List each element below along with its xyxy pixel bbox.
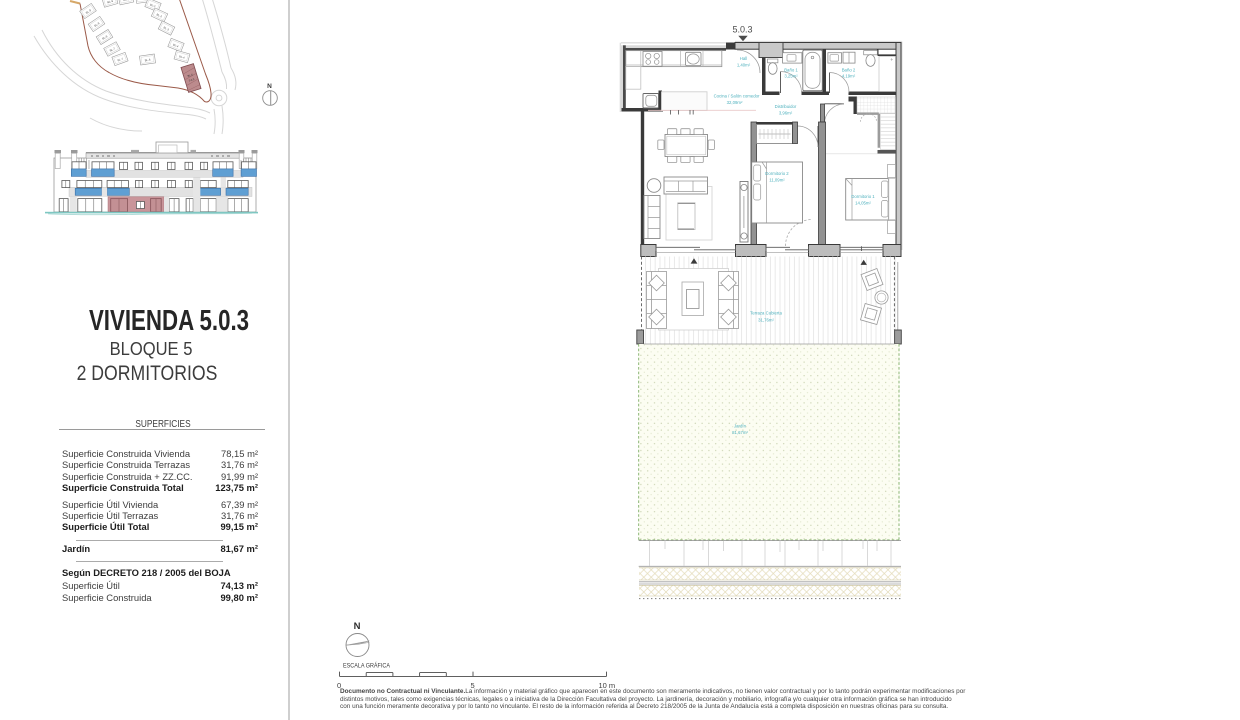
svg-text:Terraza Cubierta: Terraza Cubierta [750, 311, 782, 316]
svg-text:32,09m²: 32,09m² [727, 100, 743, 105]
svg-text:3,25m²: 3,25m² [784, 74, 798, 79]
svg-text:Dormitorio 2: Dormitorio 2 [765, 171, 789, 176]
svg-text:81,67m²: 81,67m² [732, 430, 748, 435]
svg-text:3,96m²: 3,96m² [779, 111, 793, 116]
svg-text:4,19m²: 4,19m² [842, 74, 856, 79]
svg-text:ESCALA GRÁFICA: ESCALA GRÁFICA [343, 661, 391, 670]
svg-text:Dormitorio 1: Dormitorio 1 [851, 194, 875, 199]
svg-text:Distribuidor: Distribuidor [775, 104, 797, 109]
svg-text:11,09m²: 11,09m² [769, 178, 785, 183]
svg-text:1,40m²: 1,40m² [737, 63, 751, 68]
svg-text:14,05m²: 14,05m² [855, 201, 871, 206]
svg-text:Hall: Hall [740, 56, 747, 61]
svg-text:N: N [354, 621, 361, 632]
svg-text:31,76m²: 31,76m² [758, 318, 774, 323]
svg-text:N: N [267, 83, 272, 90]
svg-text:Cocina / Salón comedor: Cocina / Salón comedor [714, 94, 760, 99]
svg-text:Jardín: Jardín [734, 424, 747, 429]
svg-text:5.0.3: 5.0.3 [732, 25, 752, 35]
svg-text:Baño 1: Baño 1 [784, 67, 798, 72]
svg-text:Baño 2: Baño 2 [842, 67, 856, 72]
